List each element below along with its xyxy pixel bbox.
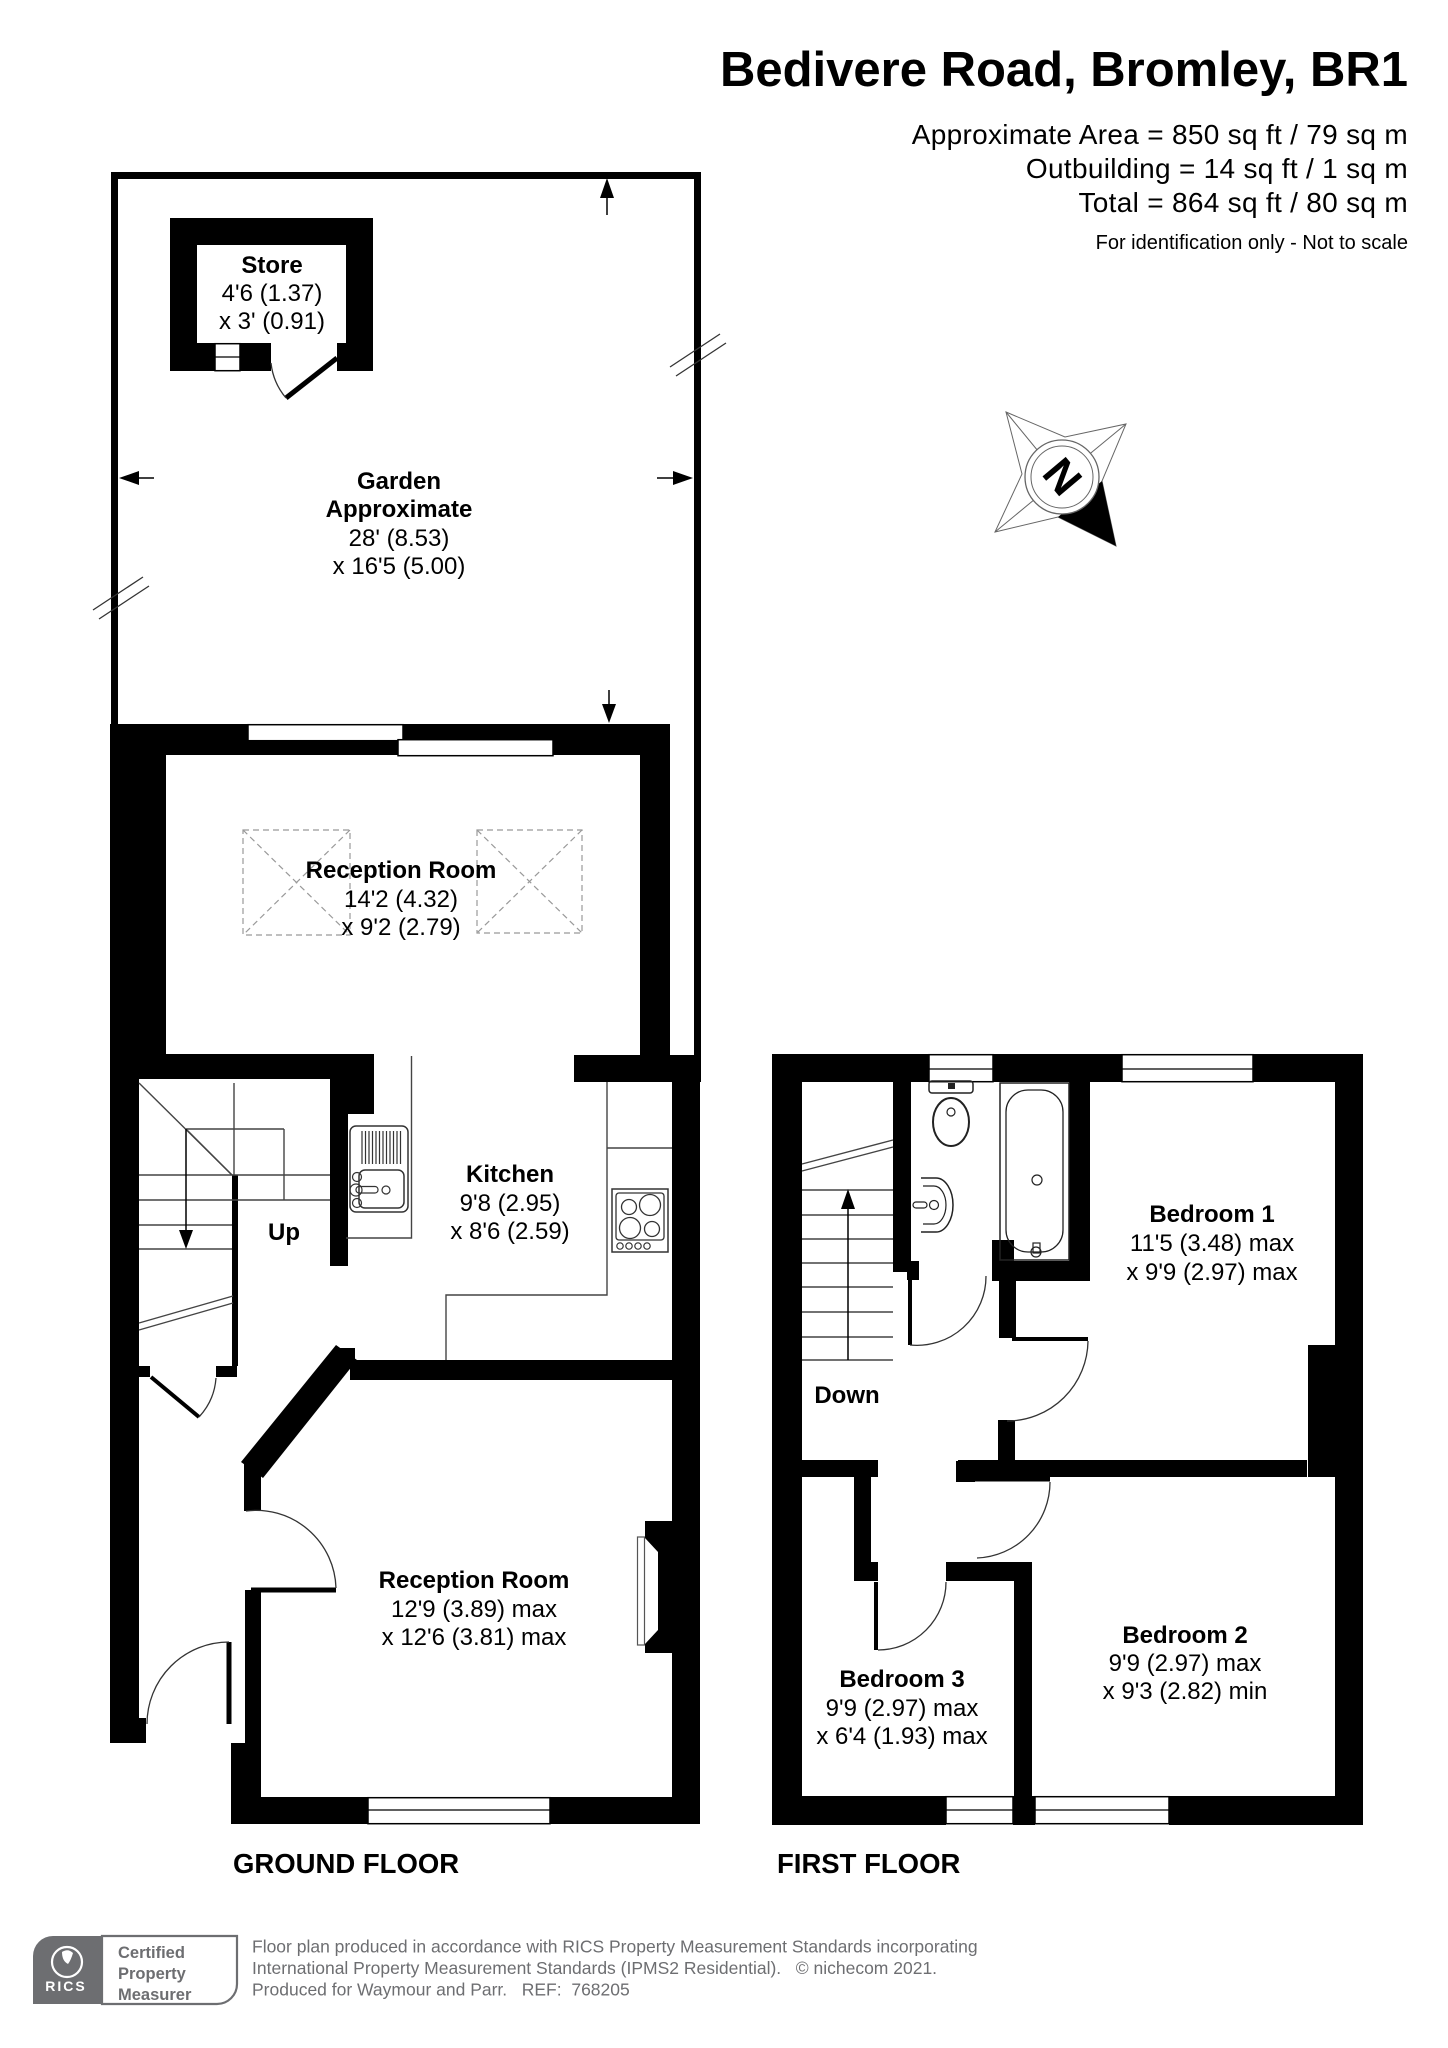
- svg-text:x 8'6 (2.59): x 8'6 (2.59): [450, 1218, 569, 1245]
- svg-text:Measurer: Measurer: [118, 1986, 192, 2004]
- svg-text:9'9 (2.97) max: 9'9 (2.97) max: [1109, 1650, 1262, 1677]
- svg-text:Store: Store: [241, 252, 302, 279]
- svg-text:Reception Room: Reception Room: [306, 857, 497, 884]
- svg-text:x 9'2 (2.79): x 9'2 (2.79): [341, 914, 460, 941]
- svg-text:11'5 (3.48) max: 11'5 (3.48) max: [1130, 1230, 1294, 1257]
- svg-text:x 6'4 (1.93) max: x 6'4 (1.93) max: [816, 1723, 987, 1750]
- svg-text:Produced for Waymour and Parr.: Produced for Waymour and Parr. REF: 7682…: [252, 1980, 630, 2000]
- svg-text:Bedroom 3: Bedroom 3: [839, 1666, 964, 1693]
- svg-text:14'2 (4.32): 14'2 (4.32): [344, 886, 458, 913]
- svg-text:x 16'5 (5.00): x 16'5 (5.00): [333, 553, 466, 580]
- svg-text:28' (8.53): 28' (8.53): [349, 525, 450, 552]
- svg-text:Total = 864 sq ft / 80 sq m: Total = 864 sq ft / 80 sq m: [1079, 187, 1409, 218]
- svg-text:x 3' (0.91): x 3' (0.91): [219, 308, 325, 335]
- svg-text:Certified: Certified: [118, 1944, 185, 1962]
- svg-text:Approximate: Approximate: [326, 496, 473, 523]
- svg-text:Up: Up: [268, 1219, 300, 1246]
- svg-text:x 9'9 (2.97) max: x 9'9 (2.97) max: [1126, 1259, 1297, 1286]
- svg-text:4'6 (1.37): 4'6 (1.37): [222, 280, 323, 307]
- svg-text:Floor plan produced in accorda: Floor plan produced in accordance with R…: [252, 1937, 978, 1957]
- svg-text:Garden: Garden: [357, 468, 441, 495]
- svg-text:Approximate Area = 850 sq ft /: Approximate Area = 850 sq ft / 79 sq m: [912, 119, 1408, 150]
- svg-text:Outbuilding = 14 sq ft / 1 sq: Outbuilding = 14 sq ft / 1 sq m: [1026, 153, 1408, 184]
- svg-text:9'9 (2.97) max: 9'9 (2.97) max: [826, 1695, 979, 1722]
- svg-text:Bedroom 1: Bedroom 1: [1149, 1201, 1274, 1228]
- svg-text:RICS: RICS: [45, 1978, 86, 1994]
- svg-text:Bedivere Road, Bromley, BR1: Bedivere Road, Bromley, BR1: [720, 43, 1408, 97]
- svg-text:12'9 (3.89) max: 12'9 (3.89) max: [391, 1596, 557, 1623]
- svg-text:Down: Down: [814, 1382, 879, 1409]
- svg-text:FIRST FLOOR: FIRST FLOOR: [777, 1848, 960, 1879]
- svg-text:Reception Room: Reception Room: [379, 1567, 570, 1594]
- svg-text:9'8 (2.95): 9'8 (2.95): [460, 1190, 561, 1217]
- svg-text:International Property Measure: International Property Measurement Stand…: [252, 1958, 937, 1978]
- svg-text:x 9'3 (2.82) min: x 9'3 (2.82) min: [1103, 1678, 1268, 1705]
- svg-text:Kitchen: Kitchen: [466, 1161, 554, 1188]
- svg-text:Bedroom 2: Bedroom 2: [1122, 1622, 1247, 1649]
- svg-text:GROUND FLOOR: GROUND FLOOR: [233, 1848, 459, 1879]
- svg-text:x 12'6 (3.81) max: x 12'6 (3.81) max: [382, 1624, 567, 1651]
- svg-text:For identification only - Not: For identification only - Not to scale: [1096, 232, 1408, 254]
- svg-text:Property: Property: [118, 1965, 187, 1983]
